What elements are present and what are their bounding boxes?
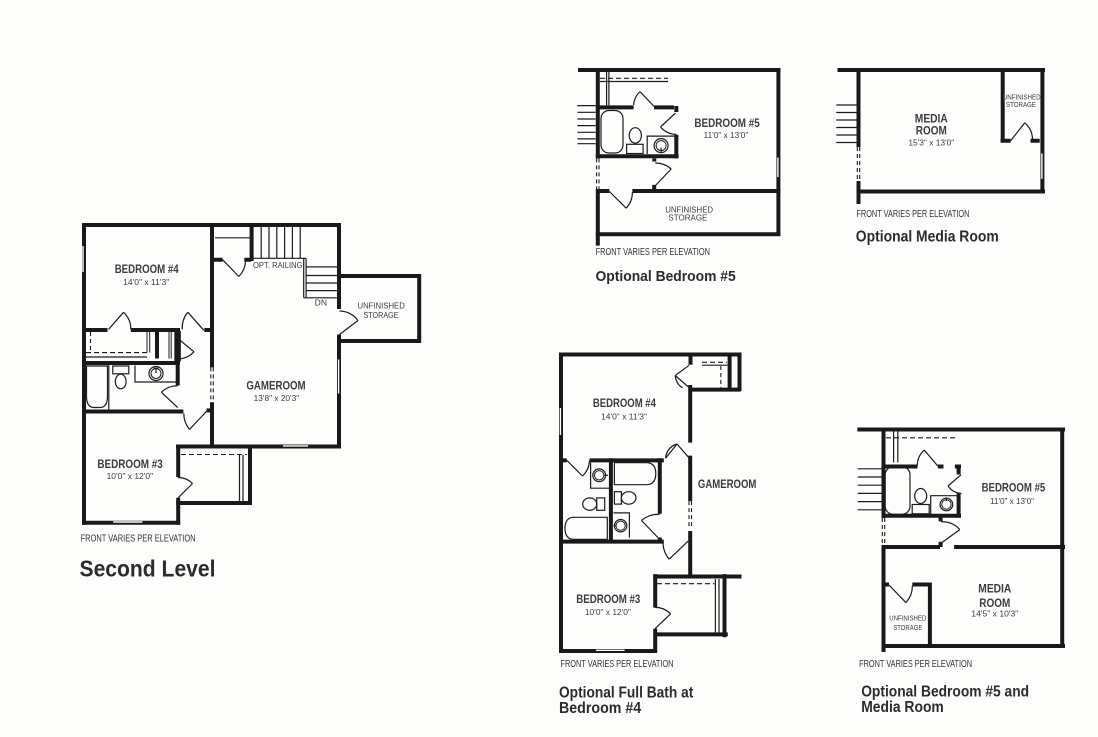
svg-text:GAMEROOM: GAMEROOM <box>698 477 757 491</box>
svg-text:GAMEROOM: GAMEROOM <box>246 378 305 392</box>
svg-text:11'0" x 13'0": 11'0" x 13'0" <box>704 131 749 140</box>
svg-text:BEDROOM #5: BEDROOM #5 <box>694 116 760 130</box>
svg-text:STORAGE: STORAGE <box>1006 102 1036 109</box>
svg-text:Optional Bedroom #5: Optional Bedroom #5 <box>596 268 736 285</box>
svg-text:STORAGE: STORAGE <box>364 311 399 320</box>
svg-text:UNFINISHED: UNFINISHED <box>358 302 406 311</box>
svg-text:Media Room: Media Room <box>861 699 944 716</box>
svg-text:MEDIA: MEDIA <box>978 582 1011 596</box>
svg-text:14'0" x 11'3": 14'0" x 11'3" <box>601 413 647 422</box>
svg-text:14'5" x 10'3": 14'5" x 10'3" <box>971 610 1018 619</box>
svg-text:FRONT VARIES PER ELEVATION: FRONT VARIES PER ELEVATION <box>81 533 196 545</box>
svg-text:15'3" x 13'0": 15'3" x 13'0" <box>908 139 954 148</box>
svg-text:FRONT VARIES PER ELEVATION: FRONT VARIES PER ELEVATION <box>596 246 710 258</box>
svg-text:FRONT VARIES PER ELEVATION: FRONT VARIES PER ELEVATION <box>856 208 969 220</box>
svg-text:11'0" x 13'0": 11'0" x 13'0" <box>990 497 1034 506</box>
svg-text:UNFINISHED: UNFINISHED <box>1003 95 1041 102</box>
svg-text:14'0" x 11'3": 14'0" x 11'3" <box>123 278 169 287</box>
svg-text:ROOM: ROOM <box>979 596 1010 610</box>
svg-text:FRONT VARIES PER ELEVATION: FRONT VARIES PER ELEVATION <box>561 658 674 670</box>
svg-text:Optional Bedroom #5 and: Optional Bedroom #5 and <box>861 683 1029 700</box>
svg-text:10'0" x 12'0": 10'0" x 12'0" <box>107 472 154 481</box>
svg-text:Second Level: Second Level <box>80 555 216 581</box>
svg-text:STORAGE: STORAGE <box>893 625 922 632</box>
svg-text:BEDROOM #3: BEDROOM #3 <box>97 457 163 471</box>
svg-text:UNFINISHED: UNFINISHED <box>889 616 926 623</box>
svg-text:BEDROOM #4: BEDROOM #4 <box>593 396 656 410</box>
svg-text:BEDROOM #5: BEDROOM #5 <box>982 481 1046 495</box>
svg-text:OPT. RAILING: OPT. RAILING <box>253 261 303 270</box>
svg-text:10'0" x 12'0": 10'0" x 12'0" <box>585 608 631 617</box>
svg-text:BEDROOM #4: BEDROOM #4 <box>115 262 179 276</box>
svg-text:Optional Full Bath at: Optional Full Bath at <box>559 684 694 701</box>
svg-text:STORAGE: STORAGE <box>668 213 707 222</box>
svg-text:FRONT VARIES PER ELEVATION: FRONT VARIES PER ELEVATION <box>859 658 972 670</box>
svg-text:BEDROOM #3: BEDROOM #3 <box>576 592 640 606</box>
svg-text:Bedroom #4: Bedroom #4 <box>559 700 641 717</box>
svg-text:Optional Media Room: Optional Media Room <box>856 229 999 246</box>
svg-text:13'8" x 20'3": 13'8" x 20'3" <box>254 394 300 403</box>
svg-text:DN: DN <box>315 299 328 308</box>
svg-text:ROOM: ROOM <box>916 123 947 137</box>
